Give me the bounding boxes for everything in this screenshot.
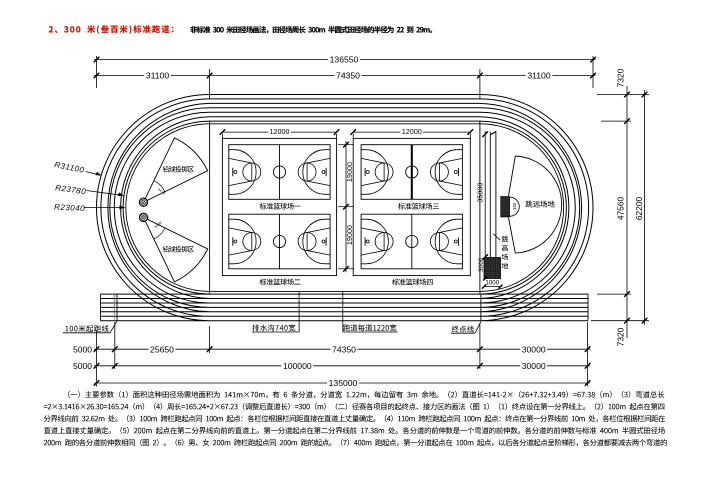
svg-text:150: 150 xyxy=(512,202,517,210)
svg-text:100000: 100000 xyxy=(283,361,312,371)
svg-text:6: 6 xyxy=(113,295,115,299)
svg-text:136550: 136550 xyxy=(330,55,359,65)
svg-text:7320: 7320 xyxy=(616,327,626,346)
svg-text:4: 4 xyxy=(113,303,115,307)
svg-text:3: 3 xyxy=(113,308,115,312)
svg-text:12000: 12000 xyxy=(402,127,422,136)
svg-text:2: 2 xyxy=(113,312,115,316)
svg-text:12000: 12000 xyxy=(270,127,290,136)
svg-text:31100: 31100 xyxy=(527,71,550,81)
svg-text:74350: 74350 xyxy=(336,71,360,81)
svg-text:5000: 5000 xyxy=(73,344,92,354)
svg-text:1000: 1000 xyxy=(485,280,499,287)
svg-text:5000: 5000 xyxy=(73,361,92,371)
svg-text:3000: 3000 xyxy=(478,257,485,272)
svg-text:19000: 19000 xyxy=(345,225,354,245)
svg-text:31100: 31100 xyxy=(146,71,169,81)
svg-text:5: 5 xyxy=(113,299,115,303)
svg-text:19000: 19000 xyxy=(345,162,354,182)
svg-text:30000: 30000 xyxy=(522,361,546,371)
svg-text:35000: 35000 xyxy=(475,183,484,203)
svg-text:R23040: R23040 xyxy=(54,203,86,214)
svg-text:62200: 62200 xyxy=(634,197,644,221)
svg-text:1: 1 xyxy=(113,317,115,321)
svg-text:7320: 7320 xyxy=(616,68,626,87)
svg-text:30000: 30000 xyxy=(522,344,546,354)
svg-text:74350: 74350 xyxy=(332,344,356,354)
svg-text:47560: 47560 xyxy=(616,197,626,221)
svg-text:25650: 25650 xyxy=(150,344,174,354)
svg-text:135000: 135000 xyxy=(329,378,358,388)
